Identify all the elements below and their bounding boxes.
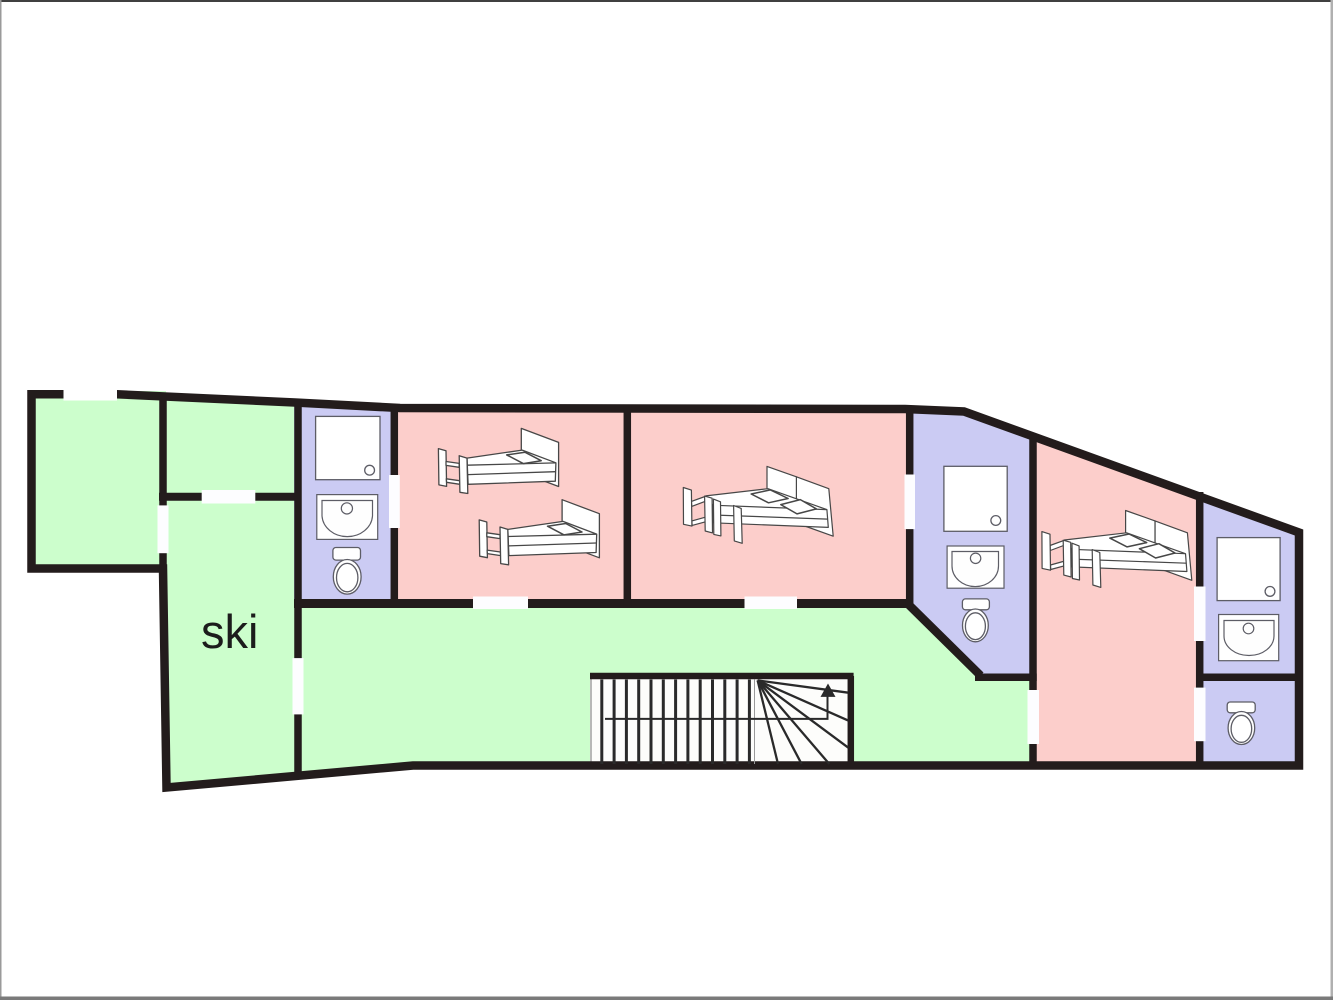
svg-text:ski: ski	[201, 605, 258, 658]
